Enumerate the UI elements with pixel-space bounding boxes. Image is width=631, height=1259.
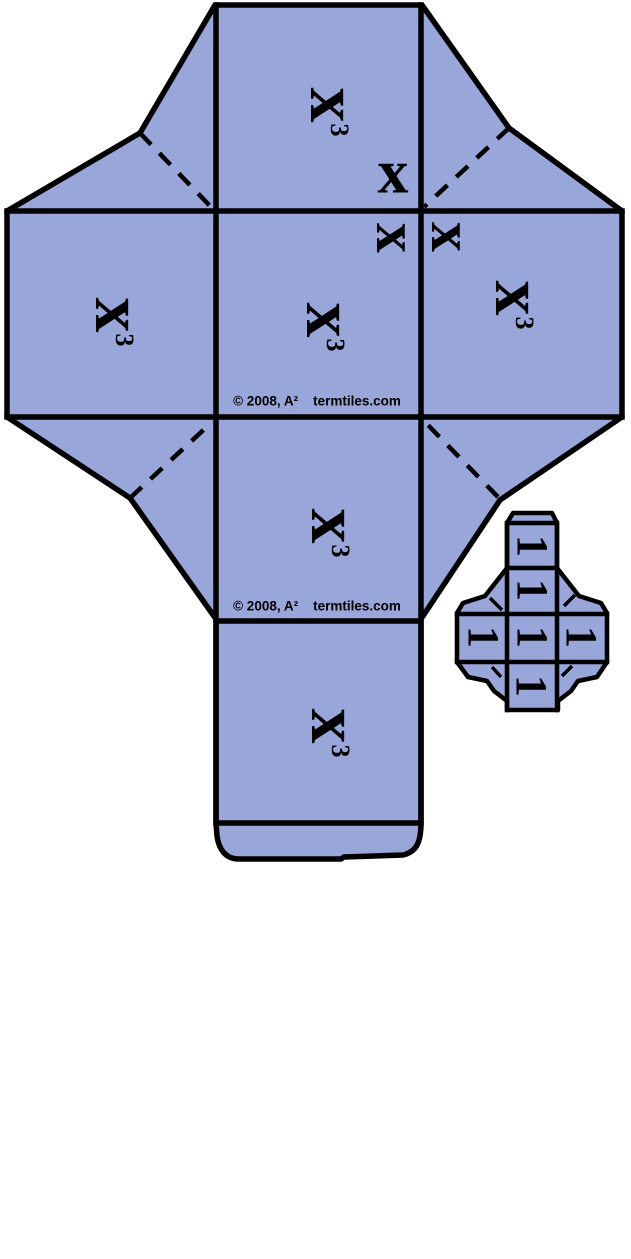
unit-face-label-top: 1 [510, 535, 554, 557]
unit-face-label-left: 1 [461, 626, 505, 648]
copyright-line-center-face: © 2008, A²termtiles.com [233, 394, 401, 408]
copyright-site: termtiles.com [313, 393, 401, 408]
unit-face-label-upper: 1 [510, 579, 554, 601]
copyright-owner: © 2008, A² [233, 598, 298, 613]
face-label-x-cubed-right: x3 [483, 281, 553, 330]
face-label-x-cubed-top: x3 [298, 88, 368, 137]
copyright-owner: © 2008, A² [233, 393, 298, 408]
edge-label-x-center-face: x [367, 223, 427, 253]
copyright-line-front-face: © 2008, A²termtiles.com [233, 599, 401, 613]
edge-label-x-right-face: x [422, 222, 482, 252]
unit-face-label-center: 1 [510, 626, 554, 648]
copyright-site: termtiles.com [313, 598, 401, 613]
worksheet-page: x3 x3 x3 x3 x3 x3 x x x © 2008, A²termti… [0, 0, 631, 1259]
edge-label-x-upright: x [378, 142, 409, 204]
unit-face-label-bottom: 1 [509, 675, 553, 697]
face-label-x-cubed-center: x3 [294, 303, 364, 352]
face-label-x-cubed-bottom: x3 [299, 709, 369, 758]
unit-face-label-right: 1 [559, 626, 603, 648]
face-label-x-cubed-front: x3 [299, 509, 369, 558]
face-label-x-cubed-left: x3 [83, 298, 153, 347]
